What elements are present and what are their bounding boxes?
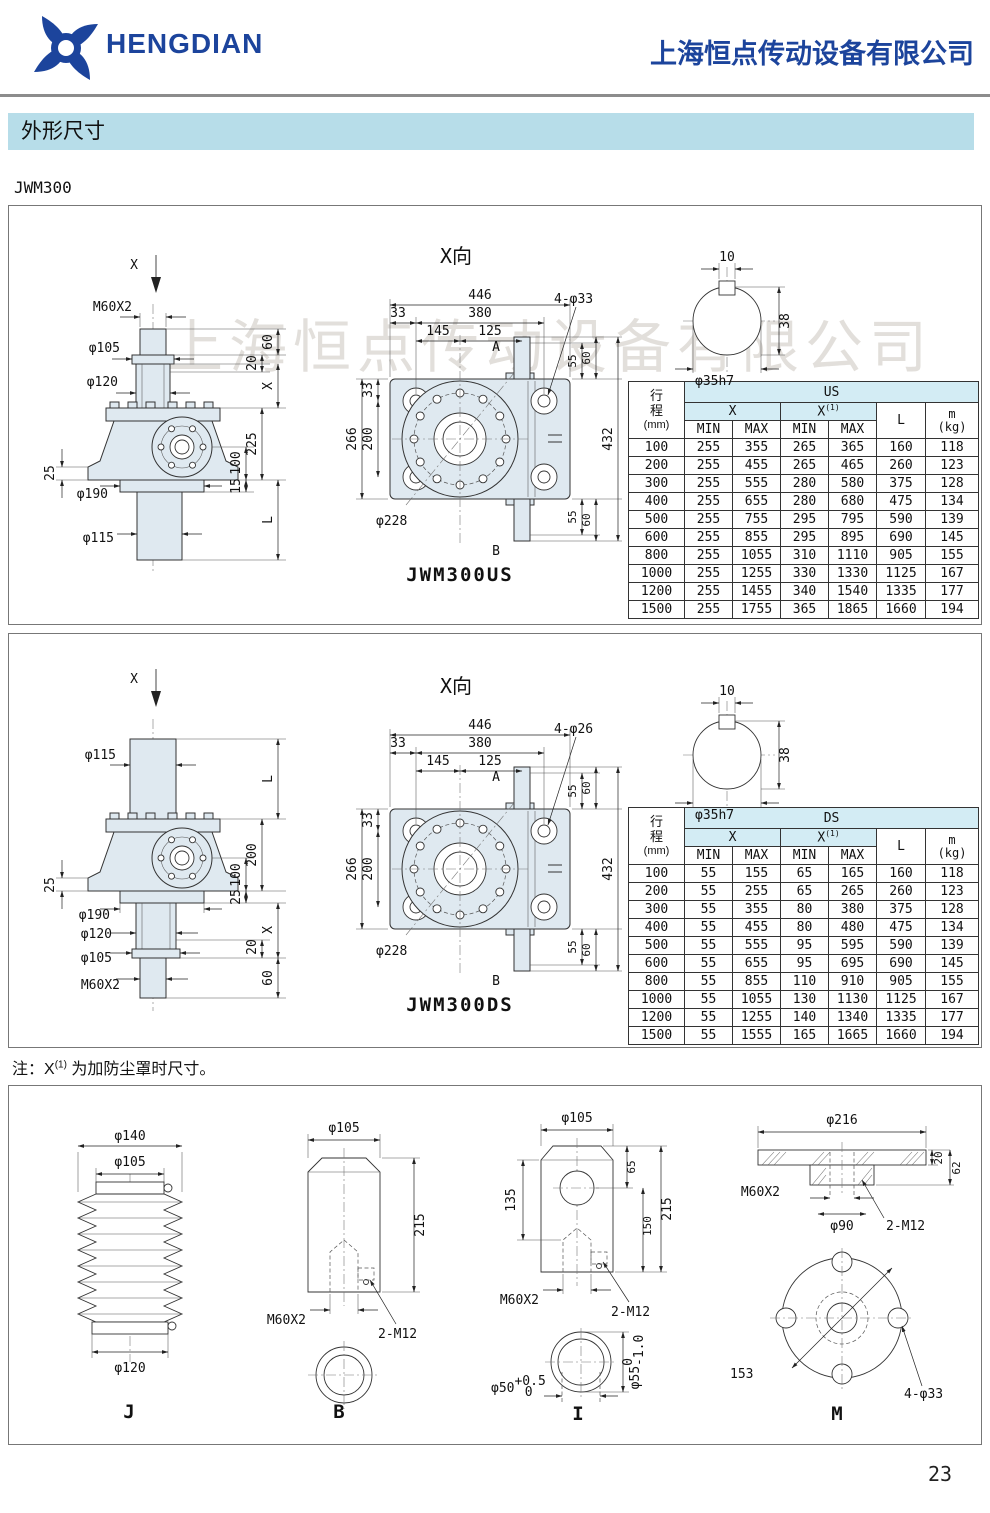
table-cell: 1555 [733,1027,781,1045]
dim-label: 266 [345,427,360,450]
accessory-j-drawing: φ140 φ105 φ120 J [20,1100,245,1430]
dim-label: 200 [245,843,260,866]
table-cell: 255 [685,583,733,601]
table-cell: 1660 [877,601,926,619]
table-cell: 139 [926,511,979,529]
dim-label: 125 [478,324,501,339]
table-cell: 65 [781,865,829,883]
table-cell: 145 [926,955,979,973]
dim-label: φ120 [114,1361,145,1376]
dim-label: φ115 [83,531,114,546]
dim-label: φ90 [830,1219,853,1234]
table-cell: 145 [926,529,979,547]
dim-label: 446 [468,288,491,303]
table-cell: 380 [829,901,877,919]
col-header-l: L [877,403,926,439]
table-cell: 1125 [877,565,926,583]
table-row: 100255355265365160118 [629,439,979,457]
dim-label: 2-M12 [378,1327,417,1342]
view-label: X向 [440,244,472,268]
dim-label: M60X2 [267,1313,306,1328]
table-cell: 365 [781,601,829,619]
dim-label: 215 [660,1197,675,1220]
table-cell: 1330 [829,565,877,583]
col-header-m-unit: (kg) [926,421,978,434]
dim-label: 4-φ33 [554,292,593,307]
dim-label: φ35h7 [695,808,734,823]
table-row: 1000255125533013301125167 [629,565,979,583]
table-cell: 255 [685,439,733,457]
brand-name: HENGDIAN [106,28,263,60]
dim-label: M60X2 [500,1293,539,1308]
footnote-prefix: 注：X [12,1061,55,1078]
table-cell: 55 [685,1027,733,1045]
point-label: B [492,974,500,989]
dim-label: 150 [641,1216,654,1236]
dim-label: M60X2 [93,300,132,315]
table-cell: 255 [685,529,733,547]
table-cell: 465 [829,457,877,475]
table-cell: 260 [877,457,926,475]
table-row: 600255855295895690145 [629,529,979,547]
dim-label: 4-φ26 [554,722,593,737]
table-cell: 1665 [829,1027,877,1045]
dim-label: φ105 [561,1111,592,1126]
point-label: A [492,770,500,785]
dim-label: X [130,258,138,273]
table-cell: 55 [685,883,733,901]
x-direction-arrow: X [130,255,161,293]
flange-bottom-view [770,1248,914,1390]
col-header-min: MIN [781,421,829,439]
table-cell: 177 [926,1009,979,1027]
dim-label: 25 [43,465,58,481]
table-cell: 177 [926,583,979,601]
table-cell: 255 [685,493,733,511]
table-cell: 655 [733,955,781,973]
table-row: 5005555595595590139 [629,937,979,955]
table-cell: 280 [781,493,829,511]
footnote-text: 为加防尘罩时尺寸。 [71,1061,215,1078]
table-row: 200255455265465260123 [629,457,979,475]
table-cell: 1755 [733,601,781,619]
dim-label: 60 [580,513,593,526]
table-cell: 255 [685,475,733,493]
table-cell: 128 [926,475,979,493]
col-header-min: MIN [685,847,733,865]
table-row: 4005545580480475134 [629,919,979,937]
dim-label: 55 [566,940,579,953]
footnote-sup: (1) [55,1060,67,1071]
table-cell: 118 [926,439,979,457]
dim-label: 38 [778,313,793,329]
table-cell: 255 [685,601,733,619]
table-cell: 140 [781,1009,829,1027]
footnote: 注：X(1) 为加防尘罩时尺寸。 [12,1055,215,1079]
table-cell: 80 [781,919,829,937]
table-row: 1005515565165160118 [629,865,979,883]
dim-label: φ140 [114,1129,145,1144]
us-side-drawing: X M60X2 φ105 φ1 [10,209,332,621]
housing-top-view [390,335,570,543]
dim-label: 60 [580,943,593,956]
us-top-drawing: X向 446 33 380 [332,209,650,621]
table-row: 150055155516516651660194 [629,1027,979,1045]
col-header-max: MAX [829,847,877,865]
col-header-x1: X(1) [781,829,877,847]
table-row: 2005525565265260123 [629,883,979,901]
us-shaft-section-drawing: 10 38 φ35h7 [655,229,815,394]
table-row: 400255655280680475134 [629,493,979,511]
table-cell: 194 [926,1027,979,1045]
dim-label: 380 [468,306,491,321]
drawing-caption: JWM300US [406,564,514,586]
table-cell: 255 [685,511,733,529]
col-header-max: MAX [829,421,877,439]
table-cell: 55 [685,865,733,883]
table-cell: 310 [781,547,829,565]
dim-label: 225 [245,432,260,455]
dim-label: 38 [778,747,793,763]
table-cell: 265 [781,439,829,457]
table-cell: 1340 [829,1009,877,1027]
model-label: JWM300 [14,178,72,197]
table-cell: 690 [877,529,926,547]
table-cell: 280 [781,475,829,493]
ds-dimension-table: 行 程 (mm) DS X X(1) L m (kg) MIN MAX MIN … [628,807,979,1045]
flange-section [758,1142,926,1196]
accessory-caption: J [123,1401,136,1423]
x-direction-arrow: X [130,669,161,707]
dim-label: φ50+0.50 [491,1374,546,1400]
table-cell: 555 [733,937,781,955]
cap-body [308,1148,380,1306]
dim-label: φ190 [79,908,110,923]
table-cell: 895 [829,529,877,547]
dim-label: 4-φ33 [904,1387,943,1402]
table-cell: 455 [733,919,781,937]
table-cell: 455 [733,457,781,475]
table-cell: 855 [733,529,781,547]
table-cell: 255 [685,565,733,583]
dim-label: 10 [719,684,735,699]
table-cell: 255 [733,883,781,901]
table-cell: 160 [877,865,926,883]
dim-label: 25 [229,889,244,905]
table-cell: 260 [877,883,926,901]
dim-label: φ105 [81,951,112,966]
table-cell: 690 [877,955,926,973]
dim-label: 135 [504,1188,519,1211]
table-cell: 80 [781,901,829,919]
col-header-m: m (kg) [926,403,979,439]
table-cell: 480 [829,919,877,937]
dim-label: 60 [580,351,593,364]
dim-label: 20 [245,355,260,371]
point-label: A [492,340,500,355]
dim-label: 60 [261,334,276,350]
bellows [78,1182,182,1334]
table-cell: 910 [829,973,877,991]
dim-label: φ228 [376,944,407,959]
dim-label: 100 [229,863,244,886]
us-dimension-table: 行 程 (mm) US X X(1) L m (kg) MIN MAX MIN … [628,381,979,619]
dim-label: φ216 [826,1113,857,1128]
dim-label: 33 [390,306,406,321]
hengdian-logo-icon [28,6,104,88]
table-cell: 110 [781,973,829,991]
dim-label: X [261,382,276,390]
dim-label: 25 [43,877,58,893]
dim-label: φ35h7 [695,374,734,389]
table-cell: 194 [926,601,979,619]
dim-label: 10 [719,250,735,265]
table-cell: 134 [926,493,979,511]
table-cell: 1455 [733,583,781,601]
table-cell: 118 [926,865,979,883]
table-cell: 755 [733,511,781,529]
dim-label: 55 [566,354,579,367]
table-row: 300255555280580375128 [629,475,979,493]
dim-label: 2-M12 [611,1305,650,1320]
accessory-m-drawing: φ216 20 62 M60X2 φ90 2-M12 153 4-φ33 M [722,1100,972,1430]
table-cell: 330 [781,565,829,583]
table-cell: 595 [829,937,877,955]
dim-label: 55 [566,784,579,797]
accessory-caption: M [831,1403,844,1425]
dim-label: 62 [950,1161,963,1174]
table-cell: 475 [877,493,926,511]
dim-label: 125 [478,754,501,769]
table-cell: 1660 [877,1027,926,1045]
table-cell: 155 [733,865,781,883]
table-cell: 905 [877,973,926,991]
housing-top-view [390,765,570,973]
col-header-max: MAX [733,847,781,865]
table-cell: 55 [685,973,733,991]
table-cell: 295 [781,511,829,529]
table-cell: 55 [685,937,733,955]
col-header-m-unit: (kg) [926,847,978,860]
table-cell: 365 [829,439,877,457]
table-cell: 1865 [829,601,877,619]
dim-label: φ120 [81,927,112,942]
accessory-i-drawing: φ105 135 65 150 215 M60X2 2-M12 φ50+0.50… [483,1100,723,1430]
dim-label: 153 [730,1367,753,1382]
table-cell: 55 [685,901,733,919]
table-cell: 155 [926,973,979,991]
dim-label: 380 [468,736,491,751]
table-row: 3005535580380375128 [629,901,979,919]
col-header-m-sym: m [926,834,978,847]
table-cell: 128 [926,901,979,919]
dim-label: 145 [426,324,449,339]
dim-label: 215 [413,1213,428,1236]
dim-label: φ105 [89,341,120,356]
dim-label: 33 [361,382,376,398]
col-header-m: m (kg) [926,829,979,865]
table-cell: 255 [685,457,733,475]
table-cell: 695 [829,955,877,973]
ds-side-drawing: X φ115 [10,639,332,1043]
table-cell: 475 [877,919,926,937]
dim-label: 15 [229,478,244,494]
table-cell: 795 [829,511,877,529]
table-cell: 680 [829,493,877,511]
dim-label: φ190 [77,487,108,502]
table-cell: 1110 [829,547,877,565]
dim-label: 2-M12 [886,1219,925,1234]
table-cell: 1540 [829,583,877,601]
ds-shaft-section-drawing: 10 38 φ35h7 [655,663,815,828]
table-cell: 165 [829,865,877,883]
table-cell: 905 [877,547,926,565]
company-name: 上海恒点传动设备有限公司 [650,32,974,71]
table-cell: 55 [685,1009,733,1027]
table-cell: 295 [781,529,829,547]
ds-top-drawing: X向 446 33 380 [332,639,650,1043]
section-title-banner: 外形尺寸 [8,113,974,150]
dim-label: 33 [390,736,406,751]
col-header-min: MIN [685,421,733,439]
dim-label: 60 [580,781,593,794]
table-cell: 1055 [733,991,781,1009]
table-cell: 165 [781,1027,829,1045]
table-cell: 55 [685,919,733,937]
dim-label: 266 [345,857,360,880]
dim-label: 65 [625,1160,638,1173]
point-label: B [492,544,500,559]
dim-label: 446 [468,718,491,733]
dim-label: 432 [601,857,616,880]
table-row: 1500255175536518651660194 [629,601,979,619]
table-cell: 555 [733,475,781,493]
table-cell: 160 [877,439,926,457]
table-row: 500255755295795590139 [629,511,979,529]
dim-label: φ105 [114,1155,145,1170]
dim-label: φ115 [85,748,116,763]
table-row: 80055855110910905155 [629,973,979,991]
table-cell: 1130 [829,991,877,1009]
table-cell: 340 [781,583,829,601]
clevis-body [541,1138,613,1286]
table-cell: 134 [926,919,979,937]
dim-label: 432 [601,427,616,450]
page-number: 23 [928,1462,952,1486]
cap-bottom-view [308,1341,380,1409]
socket-bottom-view [544,1328,618,1402]
table-cell: 55 [685,955,733,973]
table-cell: 123 [926,457,979,475]
table-cell: 1255 [733,565,781,583]
table-cell: 265 [781,457,829,475]
table-cell: 95 [781,937,829,955]
table-cell: 1125 [877,991,926,1009]
dim-label: φ120 [87,375,118,390]
table-cell: 375 [877,475,926,493]
table-cell: 375 [877,901,926,919]
table-cell: 123 [926,883,979,901]
table-cell: 95 [781,955,829,973]
dim-label: 55 [566,510,579,523]
dim-label: 20 [245,939,260,955]
dim-label: 145 [426,754,449,769]
dim-label: M60X2 [741,1185,780,1200]
table-row: 80025510553101110905155 [629,547,979,565]
dim-label: M60X2 [81,978,120,993]
table-cell: 265 [829,883,877,901]
dim-label: φ228 [376,514,407,529]
table-cell: 139 [926,937,979,955]
table-cell: 167 [926,565,979,583]
table-row: 6005565595695690145 [629,955,979,973]
table-cell: 655 [733,493,781,511]
table-cell: 1335 [877,583,926,601]
dim-label: X [261,926,276,934]
dim-label: 20 [932,1151,945,1164]
table-cell: 130 [781,991,829,1009]
col-header-max: MAX [733,421,781,439]
view-label: X向 [440,674,472,698]
accessory-b-drawing: φ105 215 M60X2 2-M12 B [248,1100,478,1430]
col-header-x: X [685,829,781,847]
dim-label: 60 [261,970,276,986]
table-cell: 580 [829,475,877,493]
table-cell: 155 [926,547,979,565]
dim-label: 200 [361,857,376,880]
table-cell: 355 [733,901,781,919]
dim-label: 100 [229,451,244,474]
table-cell: 1255 [733,1009,781,1027]
table-cell: 855 [733,973,781,991]
table-row: 120055125514013401335177 [629,1009,979,1027]
table-cell: 1055 [733,547,781,565]
drawing-caption: JWM300DS [406,994,514,1016]
dim-label: 200 [361,427,376,450]
table-cell: 167 [926,991,979,1009]
accessory-caption: I [572,1403,585,1425]
accessory-caption: B [333,1401,346,1423]
table-cell: 255 [685,547,733,565]
dim-label: 33 [361,812,376,828]
table-row: 100055105513011301125167 [629,991,979,1009]
header-rule [0,94,990,97]
table-cell: 65 [781,883,829,901]
dim-label: L [261,775,276,783]
table-cell: 1335 [877,1009,926,1027]
dim-label: φ550-1.0 [621,1335,647,1390]
col-header-min: MIN [781,847,829,865]
table-cell: 355 [733,439,781,457]
dim-label: φ105 [328,1121,359,1136]
table-cell: 55 [685,991,733,1009]
col-header-l: L [877,829,926,865]
col-header-x: X [685,403,781,421]
dim-label: X [130,672,138,687]
col-header-x1: X(1) [781,403,877,421]
table-cell: 590 [877,511,926,529]
table-cell: 590 [877,937,926,955]
table-row: 1200255145534015401335177 [629,583,979,601]
col-header-m-sym: m [926,408,978,421]
dim-label: L [261,516,276,524]
